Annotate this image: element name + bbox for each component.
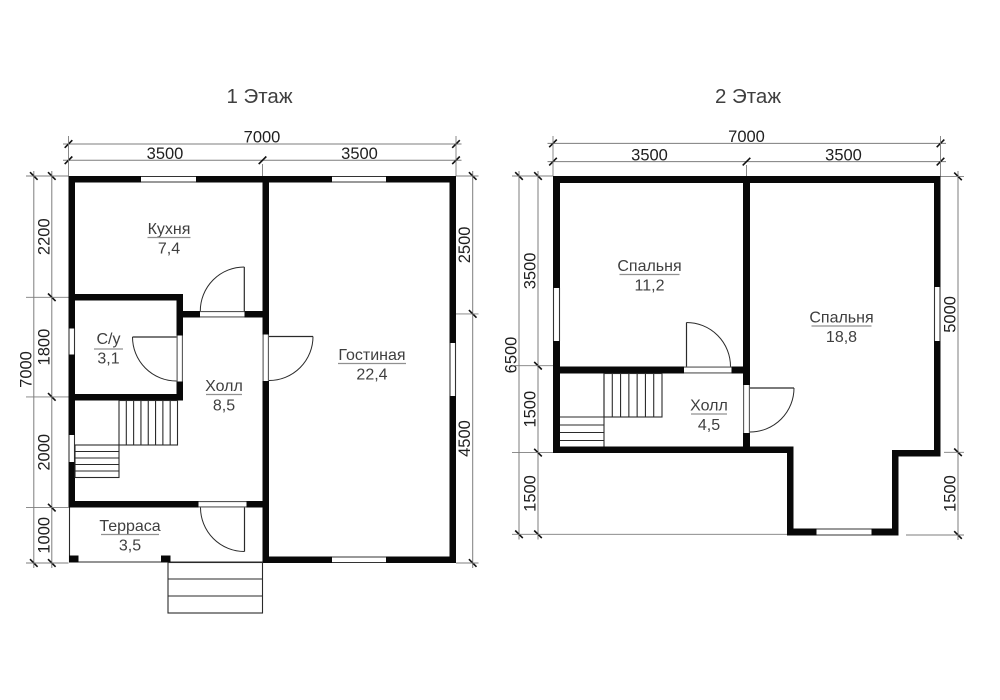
svg-text:18,8: 18,8 [826, 329, 857, 346]
svg-text:2200: 2200 [35, 218, 53, 255]
svg-text:1500: 1500 [942, 475, 960, 512]
svg-text:1000: 1000 [35, 517, 53, 554]
svg-text:2000: 2000 [35, 434, 53, 471]
svg-text:22,4: 22,4 [356, 367, 387, 384]
svg-text:6500: 6500 [503, 337, 521, 374]
svg-text:8,5: 8,5 [213, 398, 235, 415]
svg-text:7000: 7000 [244, 128, 281, 146]
svg-text:Гостиная: Гостиная [338, 347, 405, 364]
svg-text:4500: 4500 [456, 420, 474, 457]
svg-text:3500: 3500 [825, 146, 862, 164]
svg-text:Кухня: Кухня [148, 221, 191, 238]
svg-text:2500: 2500 [456, 227, 474, 264]
svg-text:1500: 1500 [522, 391, 540, 428]
svg-text:1800: 1800 [35, 329, 53, 366]
svg-text:1 Этаж: 1 Этаж [226, 85, 292, 108]
svg-text:7000: 7000 [728, 128, 765, 146]
svg-text:С/у: С/у [97, 331, 121, 348]
svg-text:7,4: 7,4 [158, 241, 180, 258]
svg-text:11,2: 11,2 [635, 278, 665, 295]
svg-text:3500: 3500 [522, 253, 540, 290]
svg-text:3500: 3500 [631, 146, 668, 164]
svg-text:5000: 5000 [942, 296, 960, 333]
svg-text:Холл: Холл [690, 398, 728, 415]
svg-text:4,5: 4,5 [698, 417, 720, 434]
svg-text:Холл: Холл [205, 378, 243, 395]
svg-text:Спальня: Спальня [617, 258, 681, 275]
svg-text:Терраса: Терраса [99, 518, 160, 535]
svg-text:2 Этаж: 2 Этаж [715, 85, 781, 108]
svg-text:3,1: 3,1 [97, 351, 119, 368]
svg-text:1500: 1500 [522, 475, 540, 512]
svg-text:Спальня: Спальня [809, 310, 873, 327]
svg-text:3500: 3500 [147, 145, 184, 163]
svg-text:3500: 3500 [341, 145, 378, 163]
svg-text:3,5: 3,5 [119, 538, 141, 555]
svg-text:7000: 7000 [18, 351, 36, 388]
